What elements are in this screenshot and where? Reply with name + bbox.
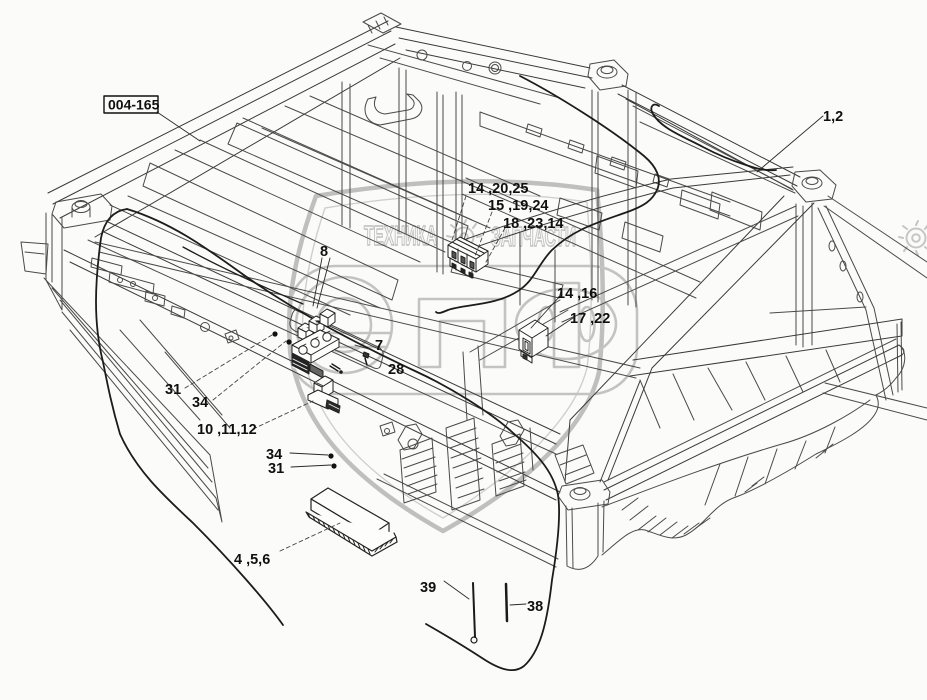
svg-text:28: 28 <box>388 362 404 378</box>
svg-text:8: 8 <box>320 244 328 260</box>
svg-text:10 ,11,12: 10 ,11,12 <box>197 422 257 438</box>
svg-text:17 ,22: 17 ,22 <box>570 311 610 327</box>
svg-text:14 ,16: 14 ,16 <box>557 286 597 302</box>
svg-text:ТЕХНИКА: ТЕХНИКА <box>364 220 437 251</box>
svg-text:31: 31 <box>268 461 284 477</box>
svg-text:31: 31 <box>165 382 181 398</box>
svg-text:38: 38 <box>527 599 543 615</box>
svg-text:34: 34 <box>192 395 208 411</box>
svg-text:14 ,20,25: 14 ,20,25 <box>468 181 528 197</box>
svg-text:7: 7 <box>375 338 383 354</box>
svg-text:1,2: 1,2 <box>823 109 843 125</box>
svg-text:4 ,5,6: 4 ,5,6 <box>234 552 270 568</box>
svg-text:18 ,23,14: 18 ,23,14 <box>503 216 563 232</box>
svg-text:39: 39 <box>420 580 436 596</box>
svg-text:15 ,19,24: 15 ,19,24 <box>488 198 548 214</box>
svg-text:004-165: 004-165 <box>108 97 160 113</box>
